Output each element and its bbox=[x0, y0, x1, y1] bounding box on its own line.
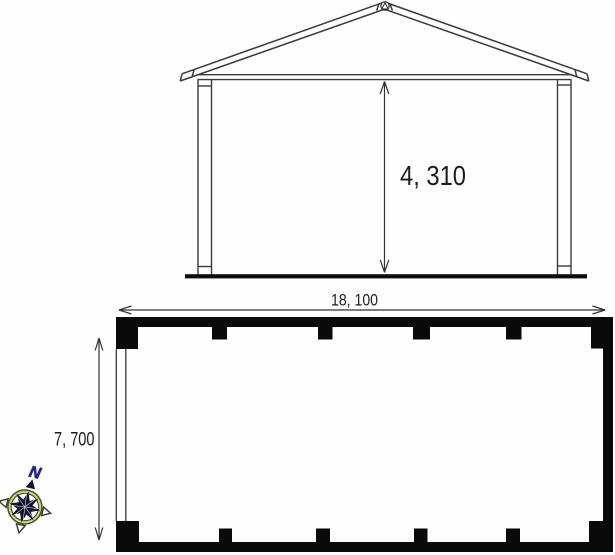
svg-text:7, 700: 7, 700 bbox=[54, 430, 95, 451]
svg-text:4, 310: 4, 310 bbox=[400, 160, 466, 191]
svg-text:18, 100: 18, 100 bbox=[331, 292, 378, 310]
